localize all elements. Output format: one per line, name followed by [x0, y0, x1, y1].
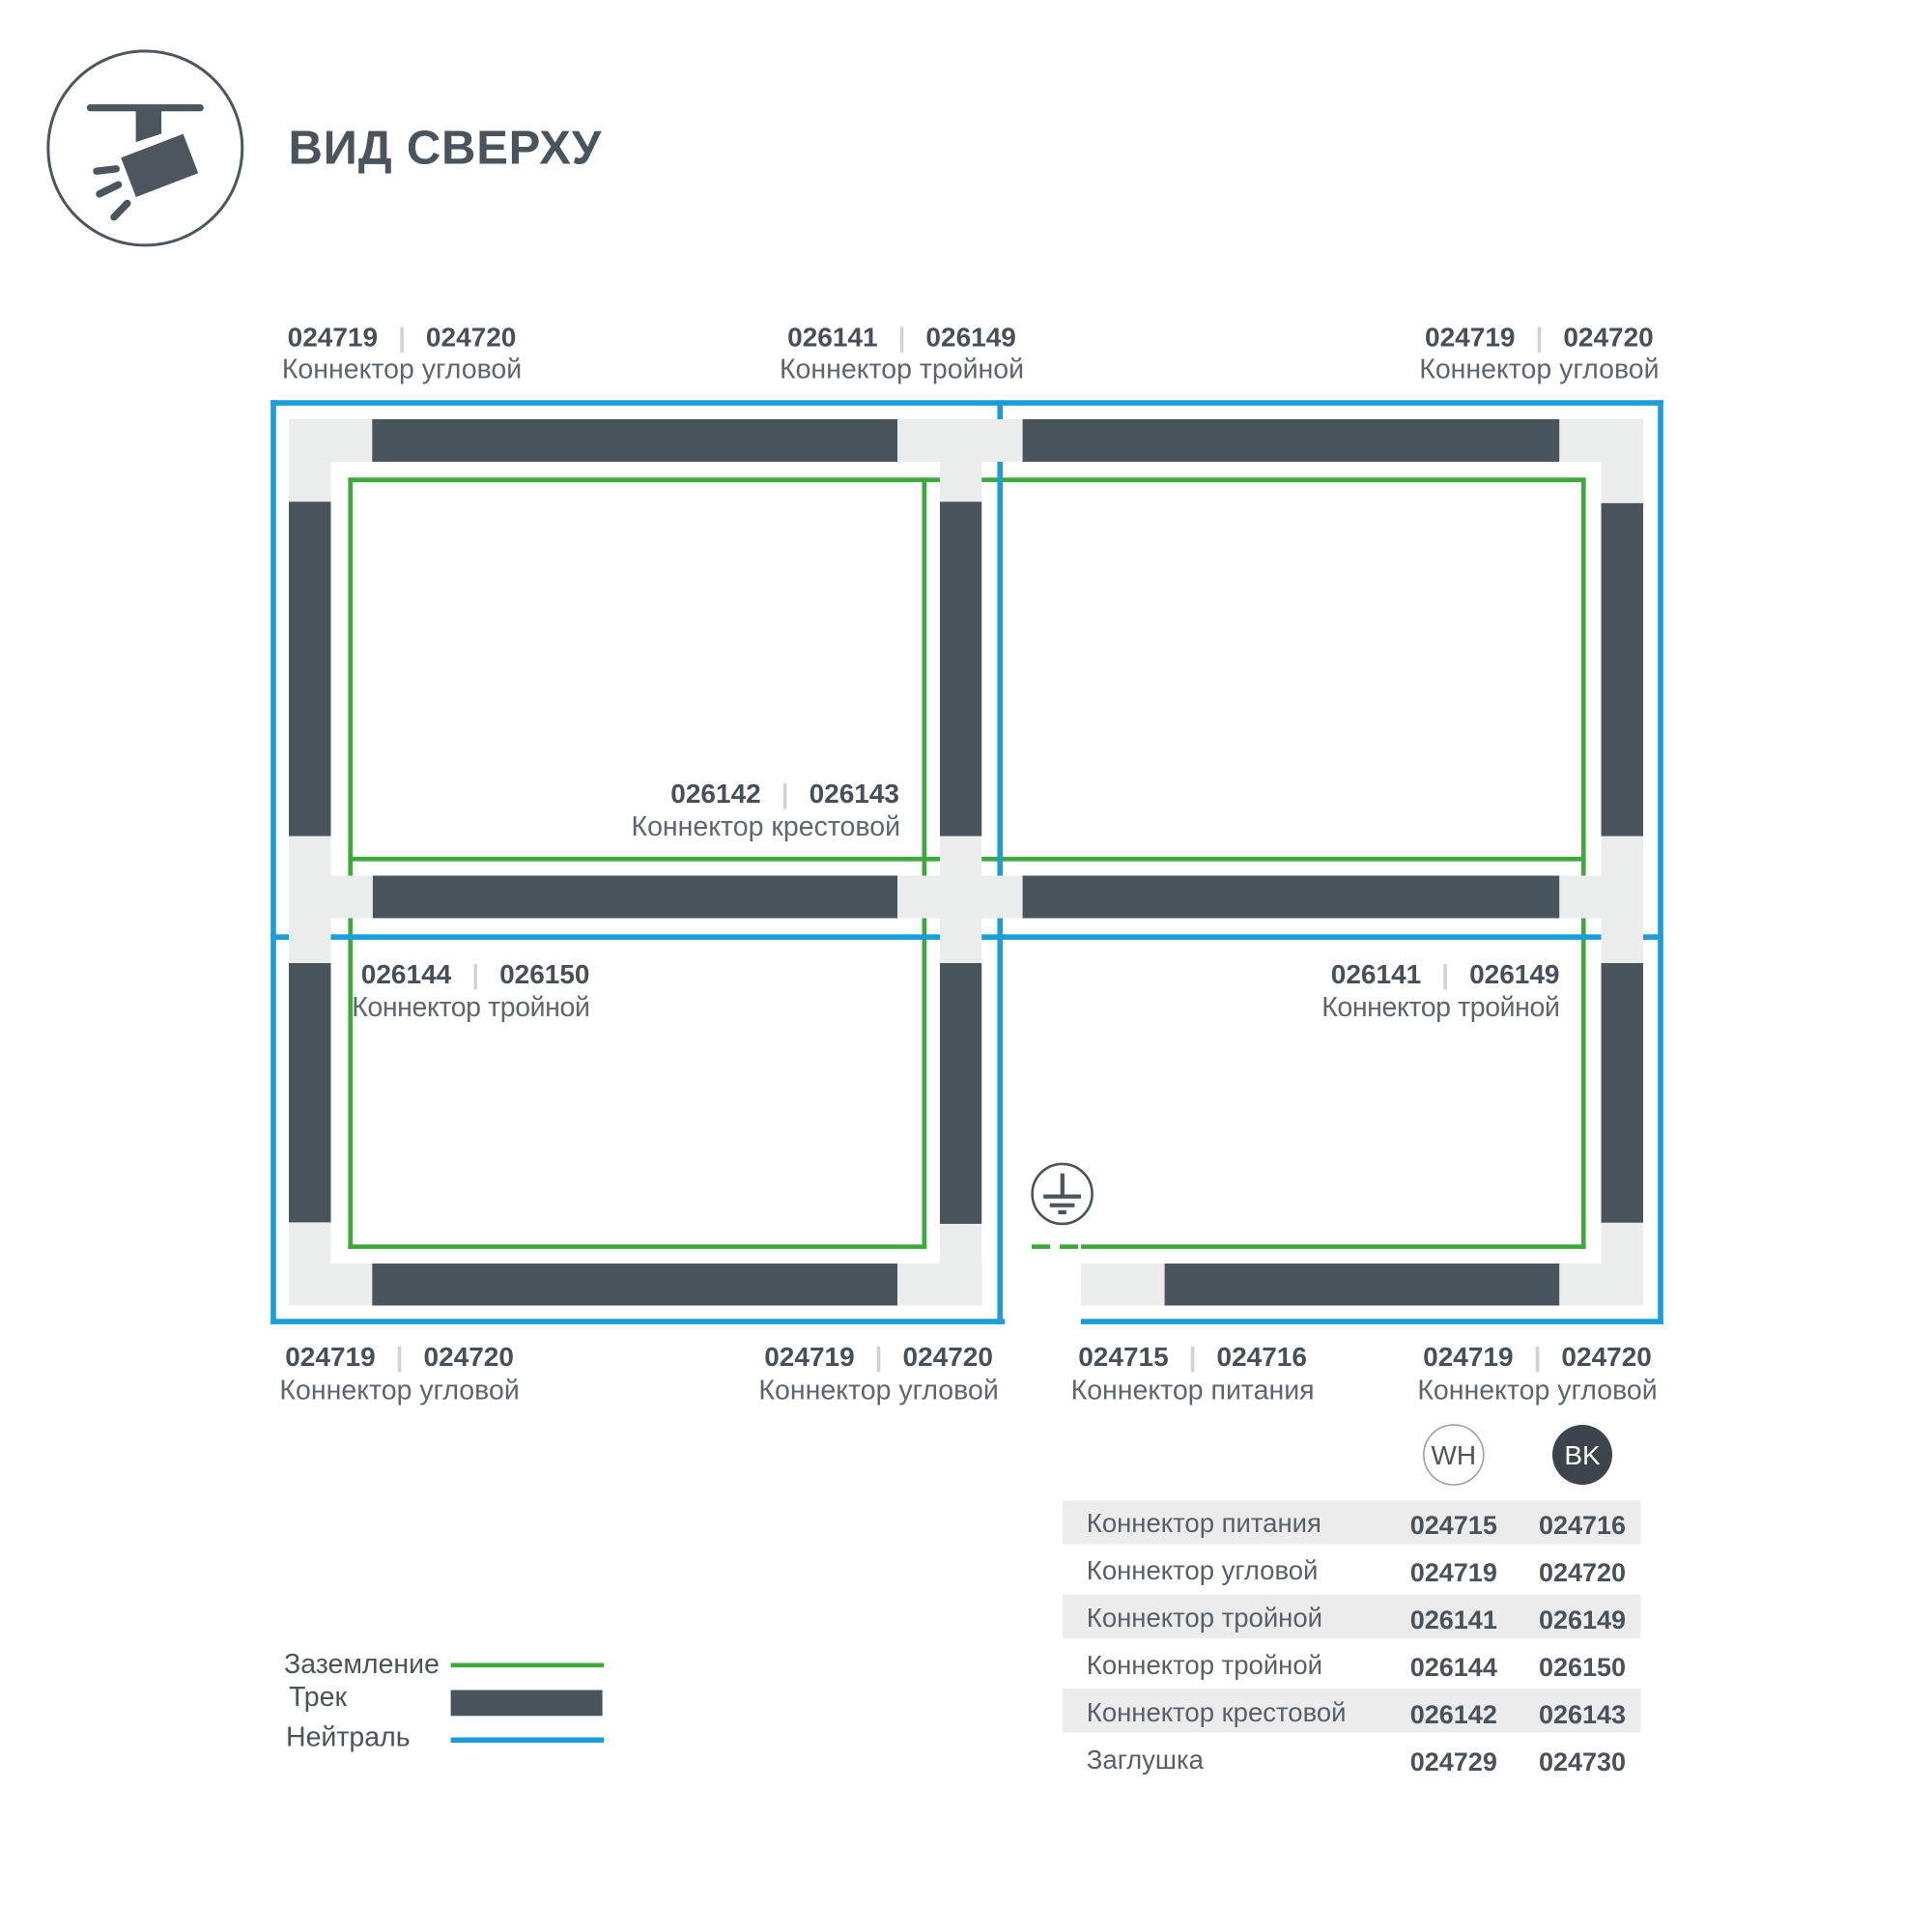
svg-text:Коннектор питания: Коннектор питания [1087, 1508, 1321, 1538]
svg-text:Коннектор питания: Коннектор питания [1071, 1376, 1315, 1406]
svg-text:024715|024716: 024715|024716 [1078, 1342, 1307, 1372]
svg-text:024719|024720: 024719|024720 [764, 1342, 993, 1372]
svg-text:Коннектор угловой: Коннектор угловой [1087, 1555, 1319, 1585]
svg-text:Коннектор крестовой: Коннектор крестовой [631, 811, 900, 842]
svg-text:026144: 026144 [1410, 1653, 1497, 1682]
svg-text:026141|026149: 026141|026149 [787, 323, 1016, 353]
svg-text:Коннектор угловой: Коннектор угловой [282, 355, 522, 385]
svg-text:Трек: Трек [289, 1682, 348, 1713]
svg-text:Коннектор угловой: Коннектор угловой [1417, 1376, 1657, 1406]
svg-text:024715: 024715 [1410, 1511, 1497, 1540]
svg-text:024730: 024730 [1539, 1747, 1626, 1776]
svg-text:024716: 024716 [1539, 1511, 1626, 1540]
svg-text:026150: 026150 [1539, 1653, 1626, 1682]
svg-text:026144|026150: 026144|026150 [361, 959, 590, 989]
svg-text:026141|026149: 026141|026149 [1331, 959, 1560, 989]
svg-text:024719: 024719 [1410, 1558, 1497, 1587]
svg-text:024719|024720: 024719|024720 [1425, 323, 1654, 353]
svg-text:026141: 026141 [1410, 1605, 1497, 1634]
svg-text:Коннектор тройной: Коннектор тройной [780, 355, 1024, 385]
svg-text:Заглушка: Заглушка [1087, 1745, 1205, 1775]
svg-text:Коннектор тройной: Коннектор тройной [1087, 1603, 1322, 1633]
svg-text:Коннектор тройной: Коннектор тройной [1087, 1650, 1322, 1680]
svg-text:Заземление: Заземление [284, 1649, 440, 1680]
svg-text:Коннектор угловой: Коннектор угловой [1419, 355, 1659, 385]
svg-text:Коннектор тройной: Коннектор тройной [352, 992, 589, 1023]
svg-text:024729: 024729 [1410, 1747, 1497, 1776]
svg-text:026142: 026142 [1410, 1700, 1497, 1729]
svg-text:024719|024720: 024719|024720 [285, 1342, 514, 1372]
svg-text:Нейтраль: Нейтраль [286, 1722, 411, 1753]
svg-text:Коннектор тройной: Коннектор тройной [1321, 992, 1559, 1023]
svg-text:Коннектор угловой: Коннектор угловой [279, 1376, 519, 1406]
svg-text:024719|024720: 024719|024720 [1423, 1342, 1652, 1372]
svg-text:024719|024720: 024719|024720 [288, 323, 517, 353]
svg-text:ВИД СВЕРХУ: ВИД СВЕРХУ [289, 123, 603, 175]
svg-text:WH: WH [1431, 1440, 1476, 1470]
svg-text:024720: 024720 [1539, 1558, 1626, 1587]
svg-text:026149: 026149 [1539, 1605, 1626, 1634]
svg-text:Коннектор угловой: Коннектор угловой [758, 1376, 998, 1406]
svg-text:Коннектор крестовой: Коннектор крестовой [1087, 1697, 1347, 1727]
svg-text:026142|026143: 026142|026143 [670, 779, 899, 809]
svg-text:BK: BK [1564, 1440, 1601, 1470]
svg-text:026143: 026143 [1539, 1700, 1626, 1729]
